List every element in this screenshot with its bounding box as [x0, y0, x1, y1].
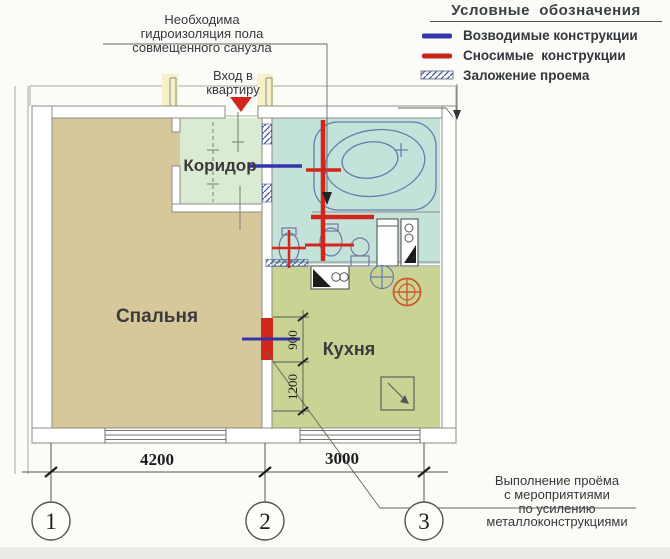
round-fixture — [371, 266, 394, 289]
note-line: Необходима — [108, 13, 296, 27]
photo-edge — [0, 547, 670, 559]
kitchen-sink — [311, 266, 349, 289]
dim-1200: 1200 — [285, 374, 300, 400]
legend-item-infill: Заложение проема — [420, 68, 668, 83]
legend-label: Сносимые конструкции — [463, 48, 626, 63]
note-line: Выполнение проёма — [442, 474, 670, 488]
legend: Условные обозначения Возводимые конструк… — [420, 2, 668, 88]
note-line: Вход в — [195, 69, 271, 83]
stove — [394, 279, 421, 306]
dim-3000: 3000 — [325, 449, 359, 468]
legend-label: Заложение проема — [463, 68, 589, 83]
infill-hatch-swatch — [420, 70, 454, 81]
dim-4200: 4200 — [140, 450, 174, 469]
axis-3: 3 — [418, 509, 430, 534]
note-line: гидроизоляция пола — [108, 27, 296, 41]
note-line: с мероприятиями — [442, 488, 670, 502]
note-line: металлоконструкциями — [442, 515, 670, 529]
dim-900: 900 — [285, 330, 300, 350]
note-waterproofing: Необходима гидроизоляция пола совмещенно… — [108, 13, 296, 54]
axis-1: 1 — [45, 509, 57, 534]
note-line: квартиру — [195, 83, 271, 97]
constructed-wall-swatch — [420, 32, 454, 40]
legend-title: Условные обозначения — [430, 2, 662, 22]
note-entrance: Вход в квартиру — [195, 69, 271, 97]
legend-item-demolished: Сносимые конструкции — [420, 48, 668, 63]
note-line: совмещенного санузла — [108, 41, 296, 55]
label-bedroom: Спальня — [116, 306, 198, 327]
axis-2: 2 — [259, 509, 271, 534]
legend-label: Возводимые конструкции — [463, 28, 638, 43]
label-corridor: Коридор — [183, 156, 256, 175]
washing-machine — [377, 219, 398, 266]
demolished-wall-swatch — [420, 52, 454, 60]
cabinet-unit — [401, 219, 418, 266]
note-opening: Выполнение проёма с мероприятиями по уси… — [442, 474, 670, 529]
legend-item-constructed: Возводимые конструкции — [420, 28, 668, 43]
floor-plan-page: 4200 3000 1 2 3 900 1200 Коридор Спальня… — [0, 0, 670, 559]
label-kitchen: Кухня — [323, 339, 376, 359]
note-line: по усилению — [442, 502, 670, 516]
